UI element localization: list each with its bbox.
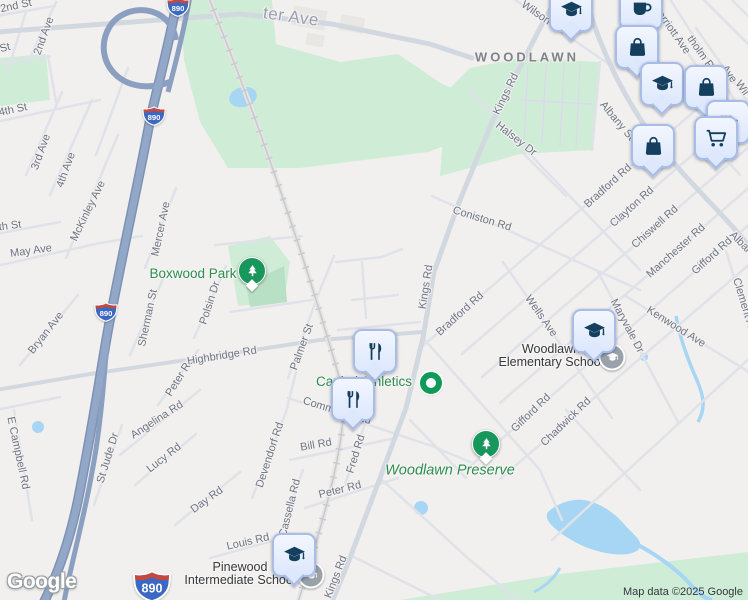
- google-logo[interactable]: Google: [7, 570, 76, 594]
- map-attribution: Map data ©2025 Google: [623, 586, 743, 598]
- area-label-woodlawn: WOODLAWN: [475, 50, 579, 65]
- map-canvas[interactable]: ter Ave2nd StSt2nd Ave4th St3rd Ave4th A…: [0, 0, 748, 600]
- map-geometry: [0, 0, 748, 600]
